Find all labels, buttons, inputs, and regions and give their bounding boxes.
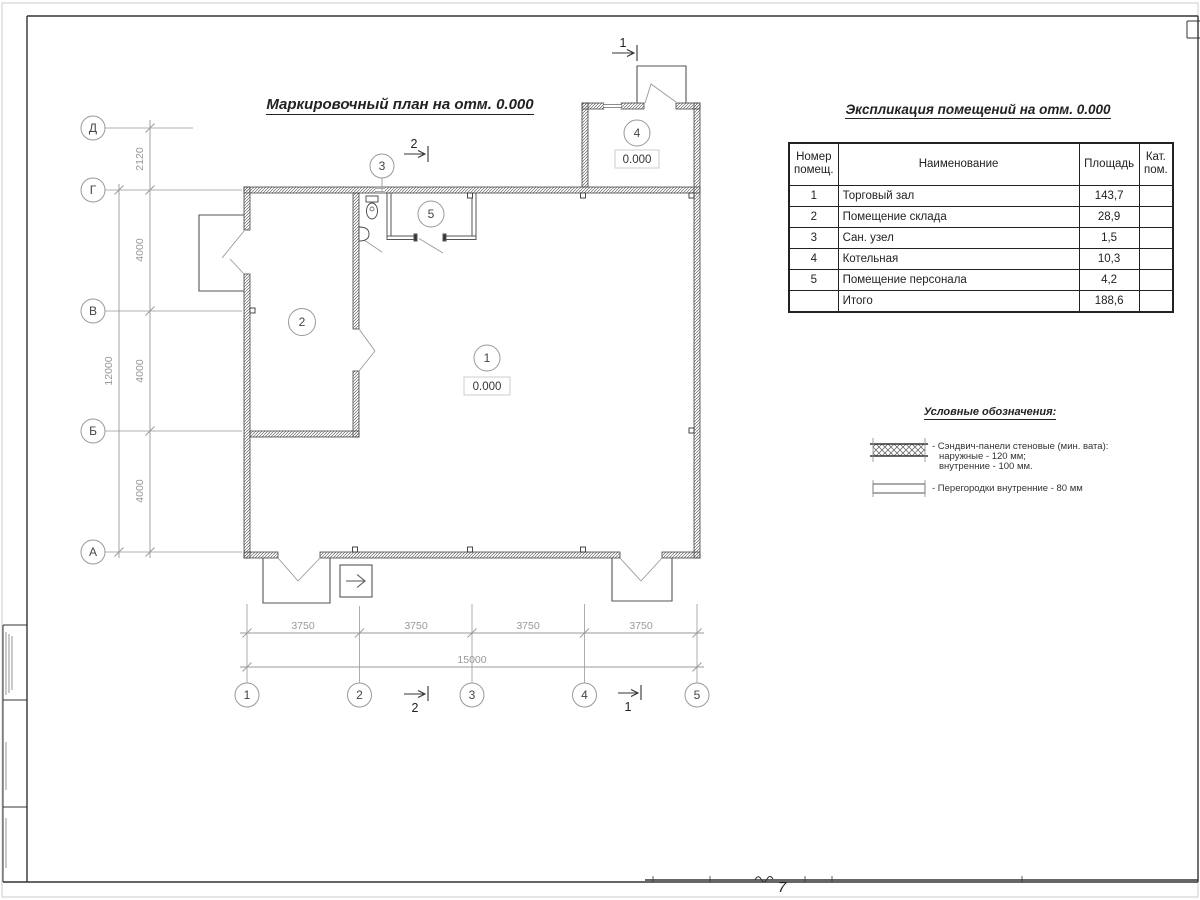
- room-number: 4: [634, 126, 641, 140]
- wall-axis-marks: [250, 193, 694, 552]
- room-schedule-table: Номер помещ. Наименование Площадь Кат. п…: [788, 142, 1174, 313]
- room-cat-cell: [1139, 227, 1173, 248]
- side-stamp-fineprint: [6, 632, 12, 868]
- door-swings: [222, 84, 676, 581]
- drawing-sheet: 7 Д Г В Б А: [0, 0, 1200, 900]
- legend-symbols: [870, 438, 928, 497]
- room-cat-cell: [1139, 248, 1173, 269]
- porch-bottom-left: [263, 558, 330, 603]
- axis-label: Б: [89, 424, 97, 438]
- dim-label: 4000: [134, 238, 146, 262]
- window-boiler: [604, 103, 621, 109]
- col-header-category: Кат. пом.: [1139, 143, 1173, 185]
- signature-squiggle: [755, 877, 773, 883]
- total-empty-cell: [789, 290, 838, 312]
- vent-wc: [376, 188, 385, 193]
- room-schedule: Номер помещ. Наименование Площадь Кат. п…: [788, 142, 1174, 313]
- entrance-arrow-box: [340, 565, 372, 597]
- room-num-cell: 4: [789, 248, 838, 269]
- table-row: 4 Котельная 10,3: [789, 248, 1173, 269]
- room-name-cell: Сан. узел: [838, 227, 1079, 248]
- table-row: 5 Помещение персонала 4,2: [789, 269, 1173, 290]
- legend-item1-line3: внутренние - 100 мм.: [939, 461, 1033, 472]
- side-stamp-column: [3, 625, 27, 882]
- porch-boiler: [637, 66, 686, 103]
- room-number: 1: [484, 351, 491, 365]
- porches: [199, 66, 686, 603]
- axis-label: 3: [469, 688, 476, 702]
- section-marks: [404, 45, 641, 701]
- axis-label: А: [89, 545, 97, 559]
- dim-label: 3750: [404, 620, 428, 632]
- dim-label: 3750: [291, 620, 315, 632]
- col-header-name: Наименование: [838, 143, 1079, 185]
- room-name-cell: Помещение склада: [838, 206, 1079, 227]
- legend-title: Условные обозначения:: [880, 402, 1100, 420]
- axes-left: Д Г В Б А: [81, 116, 242, 564]
- dim-label: 2120: [134, 147, 146, 171]
- room-number: 5: [428, 207, 435, 221]
- room-num-cell: 3: [789, 227, 838, 248]
- col-header-area: Площадь: [1079, 143, 1139, 185]
- room-num-cell: 5: [789, 269, 838, 290]
- room-name-cell: Помещение персонала: [838, 269, 1079, 290]
- room-number: 3: [379, 159, 386, 173]
- dim-label: 4000: [134, 479, 146, 503]
- table-row: 3 Сан. узел 1,5: [789, 227, 1173, 248]
- section-label: 2: [411, 137, 418, 151]
- table-row: 2 Помещение склада 28,9: [789, 206, 1173, 227]
- elevation-value: 0.000: [623, 154, 652, 166]
- axis-label: 1: [244, 688, 251, 702]
- section-label: 2: [412, 701, 419, 715]
- porch-left-loading: [199, 215, 244, 291]
- dim-total-label: 12000: [103, 356, 115, 385]
- table-total-row: Итого 188,6: [789, 290, 1173, 312]
- section-label: 1: [620, 36, 627, 50]
- legend-item2-line1: - Перегородки внутренние - 80 мм: [932, 483, 1083, 494]
- table-row: 1 Торговый зал 143,7: [789, 185, 1173, 206]
- table-title: Экспликация помещений на отм. 0.000: [800, 101, 1156, 119]
- room-area-cell: 4,2: [1079, 269, 1139, 290]
- legend-symbol-sandwich: [870, 438, 928, 462]
- title-block-top-edge: [645, 876, 1198, 882]
- room-marks: 1 2 3 4 5 0.000 0.000: [289, 120, 660, 395]
- dim-total-label: 15000: [457, 654, 486, 666]
- room-area-cell: 28,9: [1079, 206, 1139, 227]
- total-cat-cell: [1139, 290, 1173, 312]
- room-cat-cell: [1139, 269, 1173, 290]
- room-cat-cell: [1139, 206, 1173, 227]
- room-area-cell: 1,5: [1079, 227, 1139, 248]
- col-header-number: Номер помещ.: [789, 143, 838, 185]
- room-cat-cell: [1139, 185, 1173, 206]
- dim-label: 4000: [134, 359, 146, 383]
- total-label-cell: Итого: [838, 290, 1079, 312]
- total-area-cell: 188,6: [1079, 290, 1139, 312]
- legend-symbol-partition: [873, 480, 925, 497]
- room-num-cell: 2: [789, 206, 838, 227]
- dim-label: 3750: [629, 620, 653, 632]
- table-header-row: Номер помещ. Наименование Площадь Кат. п…: [789, 143, 1173, 185]
- section-mark-1-bottom: [618, 685, 641, 700]
- section-label: 1: [625, 700, 632, 714]
- elevation-value: 0.000: [473, 381, 502, 393]
- room-area-cell: 10,3: [1079, 248, 1139, 269]
- axis-label: В: [89, 304, 97, 318]
- room-area-cell: 143,7: [1079, 185, 1139, 206]
- room-number: 2: [299, 315, 306, 329]
- sheet-number: 7: [778, 879, 787, 896]
- axis-label: Д: [89, 121, 97, 135]
- axis-label: Г: [90, 183, 97, 197]
- sink: [359, 227, 369, 241]
- axis-label: 2: [356, 688, 363, 702]
- plan-title: Маркировочный план на отм. 0.000: [240, 96, 560, 114]
- section-mark-2-bottom: [404, 686, 428, 701]
- axis-label: 5: [694, 688, 701, 702]
- room-num-cell: 1: [789, 185, 838, 206]
- room-name-cell: Котельная: [838, 248, 1079, 269]
- wc-fixtures: [359, 196, 378, 241]
- dim-label: 3750: [516, 620, 540, 632]
- dimensions-left: 2120 4000 4000 4000 12000: [103, 120, 155, 558]
- toilet-tank: [366, 196, 378, 202]
- axis-label: 4: [581, 688, 588, 702]
- room-name-cell: Торговый зал: [838, 185, 1079, 206]
